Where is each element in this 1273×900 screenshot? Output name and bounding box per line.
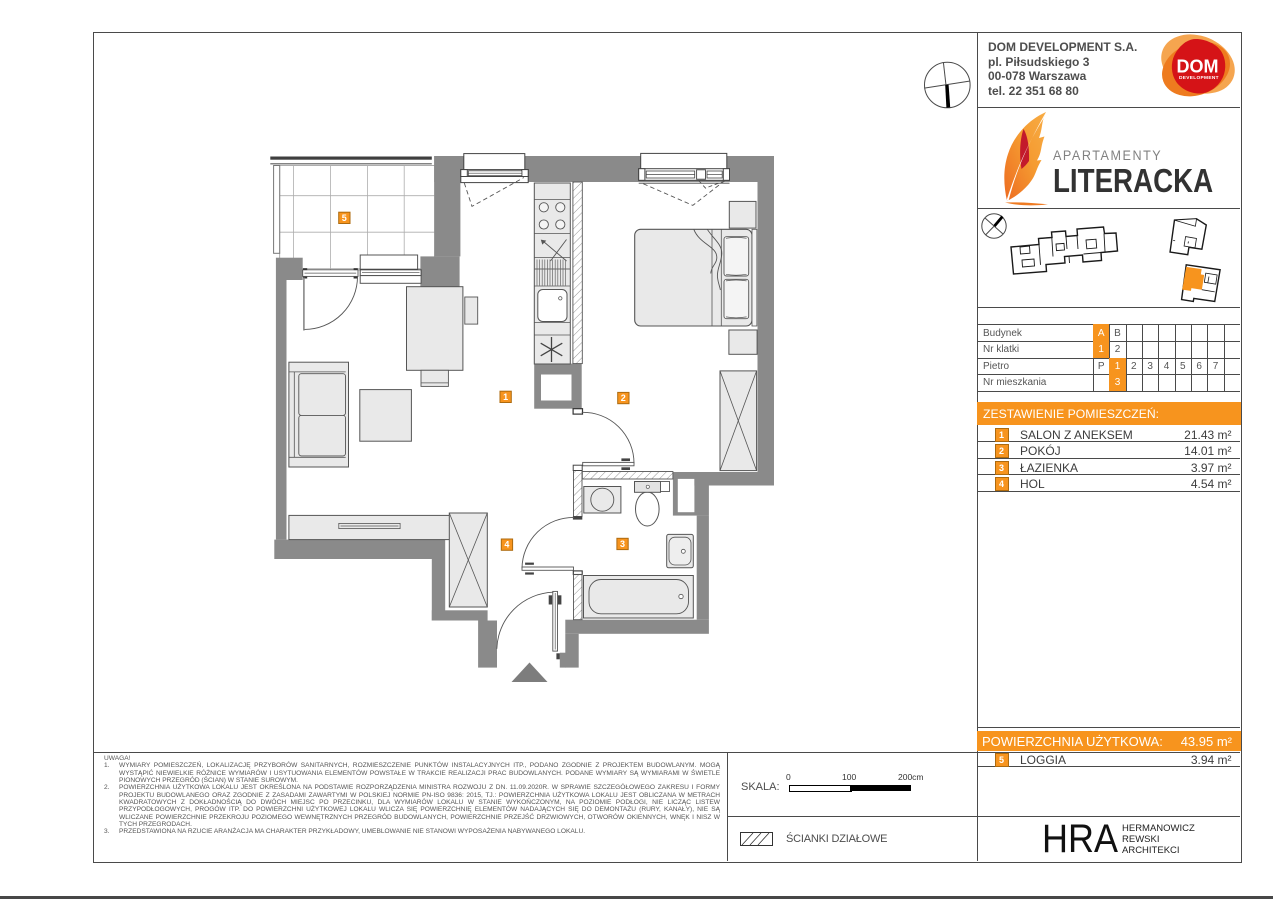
svg-text:4: 4: [504, 540, 509, 550]
svg-text:2: 2: [621, 393, 626, 403]
svg-text:5: 5: [342, 213, 347, 223]
svg-text:1: 1: [503, 392, 508, 402]
svg-text:3: 3: [620, 539, 625, 549]
